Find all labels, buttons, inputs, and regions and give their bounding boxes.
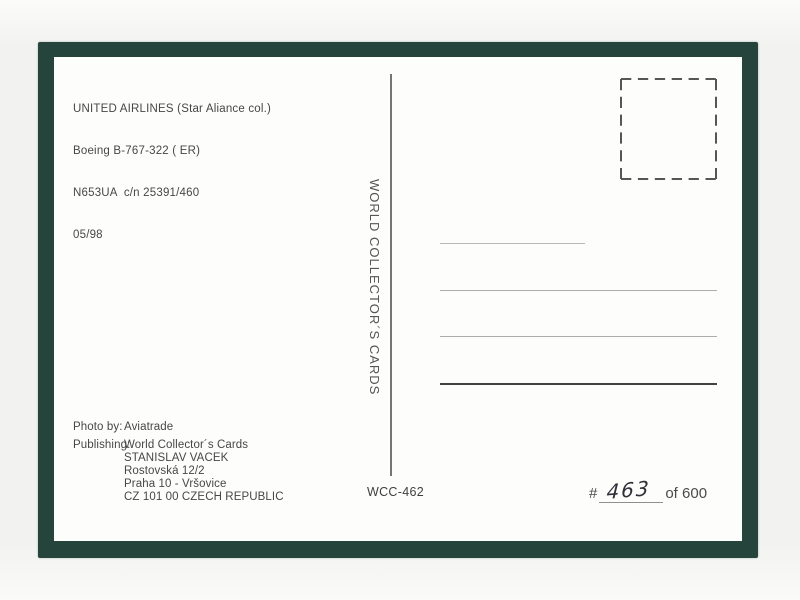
handwritten-number-line: 463 <box>599 473 663 503</box>
photo-credit-row: Photo by: Aviatrade <box>73 421 284 434</box>
caption-line-aircraft: Boeing B-767-322 ( ER) <box>73 144 271 158</box>
caption-line-airline: UNITED AIRLINES (Star Aliance col.) <box>73 102 271 116</box>
publisher-person: STANISLAV VACEK <box>124 452 284 465</box>
postcard-frame: UNITED AIRLINES (Star Aliance col.) Boei… <box>38 42 758 558</box>
publisher-country: CZ 101 00 CZECH REPUBLIC <box>124 491 284 504</box>
scan-background: UNITED AIRLINES (Star Aliance col.) Boei… <box>0 0 800 600</box>
address-line-3 <box>440 336 717 337</box>
divider-line <box>390 74 392 476</box>
caption-line-registration: N653UA c/n 25391/460 <box>73 186 271 200</box>
catalog-number: WCC-462 <box>367 485 424 499</box>
handwritten-number: 463 <box>606 476 651 504</box>
hash-symbol: # <box>589 484 597 503</box>
limited-edition-numbering: # 463 of 600 <box>589 473 707 503</box>
edition-total-label: of 600 <box>665 484 707 503</box>
caption-block: UNITED AIRLINES (Star Aliance col.) Boei… <box>73 74 271 270</box>
address-line-1 <box>440 243 585 244</box>
publisher-name: World Collector´s Cards <box>124 439 284 452</box>
caption-line-date: 05/98 <box>73 228 271 242</box>
address-line-4 <box>440 383 717 385</box>
publisher-address: World Collector´s Cards STANISLAV VACEK … <box>124 439 284 504</box>
photo-by-value: Aviatrade <box>124 421 173 434</box>
photo-by-label: Photo by: <box>73 421 124 434</box>
publisher-city: Praha 10 - Vršovice <box>124 478 284 491</box>
publishing-credit-row: Publishing: World Collector´s Cards STAN… <box>73 439 284 504</box>
stamp-box <box>620 78 717 180</box>
publisher-street: Rostovská 12/2 <box>124 465 284 478</box>
brand-vertical-text: WORLD COLLECTOR´S CARDS <box>358 179 382 394</box>
address-line-2 <box>440 290 717 291</box>
publishing-label: Publishing: <box>73 439 124 504</box>
credits-block: Photo by: Aviatrade Publishing: World Co… <box>73 421 284 504</box>
postcard-back: UNITED AIRLINES (Star Aliance col.) Boei… <box>54 57 742 541</box>
